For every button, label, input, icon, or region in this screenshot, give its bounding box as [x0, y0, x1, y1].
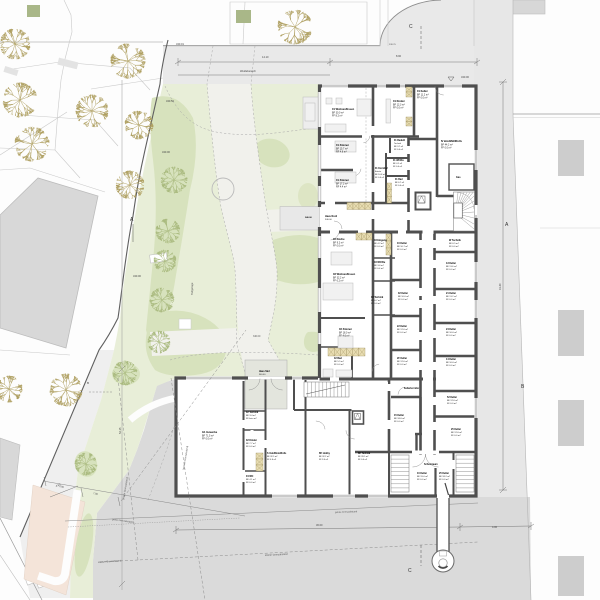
svg-text:Kellerkorridor: Kellerkorridor	[404, 388, 419, 390]
svg-text:FF 0.0 m²: FF 0.0 m²	[393, 165, 402, 168]
svg-text:24 Keller: 24 Keller	[446, 328, 456, 331]
svg-text:10 Keller: 10 Keller	[417, 472, 427, 475]
svg-text:340.00: 340.00	[162, 150, 170, 154]
svg-text:13 Keller: 13 Keller	[446, 262, 456, 265]
svg-text:340.00: 340.00	[325, 219, 332, 221]
svg-text:BF 3.7 m²: BF 3.7 m²	[394, 145, 403, 148]
svg-text:04 WC: 04 WC	[246, 475, 254, 478]
svg-text:14 Keller: 14 Keller	[446, 358, 456, 361]
svg-text:BF 12.6 m²: BF 12.6 m²	[447, 399, 458, 402]
svg-text:BF 12.6 m²: BF 12.6 m²	[451, 431, 462, 434]
svg-text:FF 0.0 m²: FF 0.0 m²	[334, 363, 344, 366]
svg-text:FF 0.0 m²: FF 0.0 m²	[446, 364, 456, 367]
svg-text:RF 4.4 m²: RF 4.4 m²	[336, 186, 347, 189]
svg-text:BF 18.2 m²: BF 18.2 m²	[439, 475, 450, 478]
svg-text:338.25: 338.25	[389, 44, 396, 46]
svg-text:FF 0.0 m²: FF 0.0 m²	[446, 334, 456, 337]
svg-text:FF 6.2 m²: FF 6.2 m²	[333, 280, 344, 283]
svg-text:FF 3.0 m²: FF 3.0 m²	[319, 458, 328, 461]
svg-text:FF 0.0 m²: FF 0.0 m²	[397, 248, 407, 251]
svg-text:FF 0.4 m²: FF 0.4 m²	[374, 267, 384, 270]
svg-text:BF 3.6 m²: BF 3.6 m²	[374, 264, 384, 267]
svg-text:BF 19.0 m²: BF 19.0 m²	[417, 475, 428, 478]
svg-text:BF 10.6 m²: BF 10.6 m²	[446, 331, 457, 334]
svg-text:FF 0.0 m²: FF 0.0 m²	[446, 268, 456, 271]
svg-text:FF 0.0 m²: FF 0.0 m²	[447, 402, 457, 405]
svg-text:01 Reduit/: 01 Reduit/	[394, 139, 405, 142]
svg-text:BF 4.1 m²: BF 4.1 m²	[246, 478, 256, 481]
svg-text:22 Keller: 22 Keller	[397, 325, 407, 328]
svg-text:C: C	[408, 568, 412, 574]
svg-text:Haus Nord: Haus Nord	[325, 215, 338, 218]
svg-text:Schutzraum: Schutzraum	[424, 463, 438, 466]
svg-text:52.15: 52.15	[118, 427, 122, 434]
svg-text:FF 0.0 m²: FF 0.0 m²	[374, 245, 384, 248]
svg-text:FF 4.6 m²: FF 4.6 m²	[267, 458, 276, 461]
svg-text:BF 7.7 m²: BF 7.7 m²	[246, 442, 256, 445]
svg-text:FF 0.0 m²: FF 0.0 m²	[398, 298, 408, 301]
svg-text:01 Korridor/: 01 Korridor/	[375, 168, 388, 170]
svg-text:FF 0.0 m²: FF 0.0 m²	[449, 245, 459, 248]
svg-text:340.00: 340.00	[461, 75, 469, 79]
svg-text:BF 12.6 m²: BF 12.6 m²	[397, 360, 408, 363]
svg-text:BF 11.2 m²: BF 11.2 m²	[446, 295, 457, 298]
svg-text:41.40: 41.40	[498, 283, 502, 290]
svg-text:01 Bad: 01 Bad	[395, 179, 403, 181]
svg-text:FF kein m²: FF kein m²	[246, 417, 257, 420]
svg-text:FF 0.0 m²: FF 0.0 m²	[394, 420, 404, 423]
svg-text:BF 6.5 m²: BF 6.5 m²	[449, 242, 459, 245]
svg-text:FF 0.0 m²: FF 0.0 m²	[441, 147, 452, 150]
svg-text:4.00: 4.00	[492, 525, 498, 529]
svg-text:340.00: 340.00	[133, 274, 141, 278]
svg-text:BF 12.6 m²: BF 12.6 m²	[397, 328, 408, 331]
svg-text:03 WC/Du: 03 WC/Du	[374, 261, 386, 264]
svg-text:FF 0.0 m²: FF 0.0 m²	[397, 331, 407, 334]
svg-text:B: B	[87, 381, 89, 385]
svg-text:Tiefgarage: Tiefgarage	[190, 282, 194, 295]
svg-text:BF Hobby: BF Hobby	[319, 453, 331, 455]
svg-text:FF 0.0 m²: FF 0.0 m²	[397, 363, 407, 366]
svg-text:15 Keller: 15 Keller	[394, 414, 404, 417]
svg-text:FF 4.6 m²: FF 4.6 m²	[339, 335, 350, 338]
svg-text:S Velo/Moto/Rolls: S Velo/Moto/Rolls	[267, 452, 287, 455]
svg-text:2F Keller: 2F Keller	[397, 357, 407, 360]
svg-text:BF 4.2 m²: BF 4.2 m²	[374, 242, 384, 245]
svg-text:340.01: 340.01	[176, 42, 184, 46]
svg-text:02 Technik: 02 Technik	[246, 411, 259, 414]
svg-text:340.00: 340.00	[305, 216, 312, 219]
svg-text:BF 11.6 m²: BF 11.6 m²	[446, 265, 457, 268]
svg-text:340.00: 340.00	[259, 374, 266, 376]
svg-text:02 Kinder: 02 Kinder	[246, 439, 257, 442]
svg-text:C: C	[409, 24, 413, 30]
svg-text:BF 10.6 m²: BF 10.6 m²	[446, 361, 457, 364]
svg-text:01 WC/Du: 01 WC/Du	[393, 160, 404, 162]
svg-text:FF 0.0 m²: FF 0.0 m²	[333, 245, 344, 248]
svg-text:03 Eingang: 03 Eingang	[374, 239, 387, 242]
svg-text:FF 0.0 m²: FF 0.0 m²	[358, 458, 367, 461]
svg-text:FF 0.0 m²: FF 0.0 m²	[246, 481, 256, 484]
svg-text:W Technik: W Technik	[449, 239, 461, 242]
svg-text:BF 4.1 m²: BF 4.1 m²	[393, 162, 402, 165]
svg-text:BF 3.4 m²: BF 3.4 m²	[246, 414, 256, 417]
svg-text:FF 0.0 m²: FF 0.0 m²	[202, 438, 213, 441]
svg-text:BF Technik: BF Technik	[358, 453, 371, 455]
svg-text:52 Keller: 52 Keller	[447, 396, 457, 399]
svg-text:BF 10.8 m²: BF 10.8 m²	[375, 173, 386, 176]
svg-text:02 Keller: 02 Keller	[398, 292, 408, 295]
svg-text:FF 0.0 m²: FF 0.0 m²	[395, 184, 404, 187]
svg-text:Technik: Technik	[394, 143, 402, 145]
svg-text:8.90: 8.90	[396, 54, 402, 58]
svg-text:Weidebereich: Weidebereich	[240, 69, 256, 73]
svg-text:Entrée: Entrée	[375, 170, 382, 173]
svg-text:30.00: 30.00	[316, 523, 323, 527]
svg-text:FF 0.0 m²: FF 0.0 m²	[375, 176, 384, 179]
svg-text:10 Keller: 10 Keller	[397, 242, 407, 245]
svg-text:25 Keller: 25 Keller	[439, 472, 449, 475]
svg-text:FF 0.0 m²: FF 0.0 m²	[439, 478, 449, 481]
svg-text:14.10: 14.10	[262, 55, 269, 59]
svg-text:Haus Süd: Haus Süd	[259, 371, 270, 373]
svg-text:FF 0.0 m²: FF 0.0 m²	[446, 298, 456, 301]
svg-text:FF 0.0 m²: FF 0.0 m²	[417, 97, 428, 100]
svg-text:21 Keller: 21 Keller	[446, 292, 456, 295]
svg-text:RF 4.6 m²: RF 4.6 m²	[336, 151, 347, 154]
svg-text:FF 0.0 m²: FF 0.0 m²	[394, 148, 403, 151]
svg-text:BF 32.5 m²: BF 32.5 m²	[267, 455, 278, 458]
svg-text:FF 8.2 m²: FF 8.2 m²	[332, 115, 343, 118]
svg-text:BF 10.6 m²: BF 10.6 m²	[398, 295, 409, 298]
svg-text:340.50: 340.50	[166, 99, 174, 103]
svg-text:FF 0.0 m²: FF 0.0 m²	[393, 107, 404, 110]
svg-text:Gas: Gas	[456, 176, 461, 179]
svg-text:340.00: 340.00	[253, 335, 261, 338]
svg-text:BF 32.2 m²: BF 32.2 m²	[319, 455, 330, 458]
svg-text:BF 10.7 m²: BF 10.7 m²	[397, 245, 408, 248]
svg-text:02 Bad: 02 Bad	[334, 357, 342, 360]
svg-text:BF 6.7 m²: BF 6.7 m²	[371, 299, 381, 302]
svg-text:FF 0.0 m²: FF 0.0 m²	[417, 478, 427, 481]
svg-text:25 Keller: 25 Keller	[451, 428, 461, 431]
svg-text:BF 5.5 m²: BF 5.5 m²	[334, 360, 344, 363]
svg-text:03 Technik: 03 Technik	[371, 296, 384, 299]
svg-text:FF 0.0 m²: FF 0.0 m²	[246, 445, 256, 448]
svg-text:FF 0.0 m²: FF 0.0 m²	[371, 302, 381, 305]
svg-text:FF 0.0 m²: FF 0.0 m²	[451, 434, 461, 437]
svg-text:BF 18.6 m²: BF 18.6 m²	[394, 417, 405, 420]
svg-text:BF 6.7 m²: BF 6.7 m²	[395, 181, 404, 184]
svg-text:BF 28.5 m²: BF 28.5 m²	[358, 455, 369, 458]
